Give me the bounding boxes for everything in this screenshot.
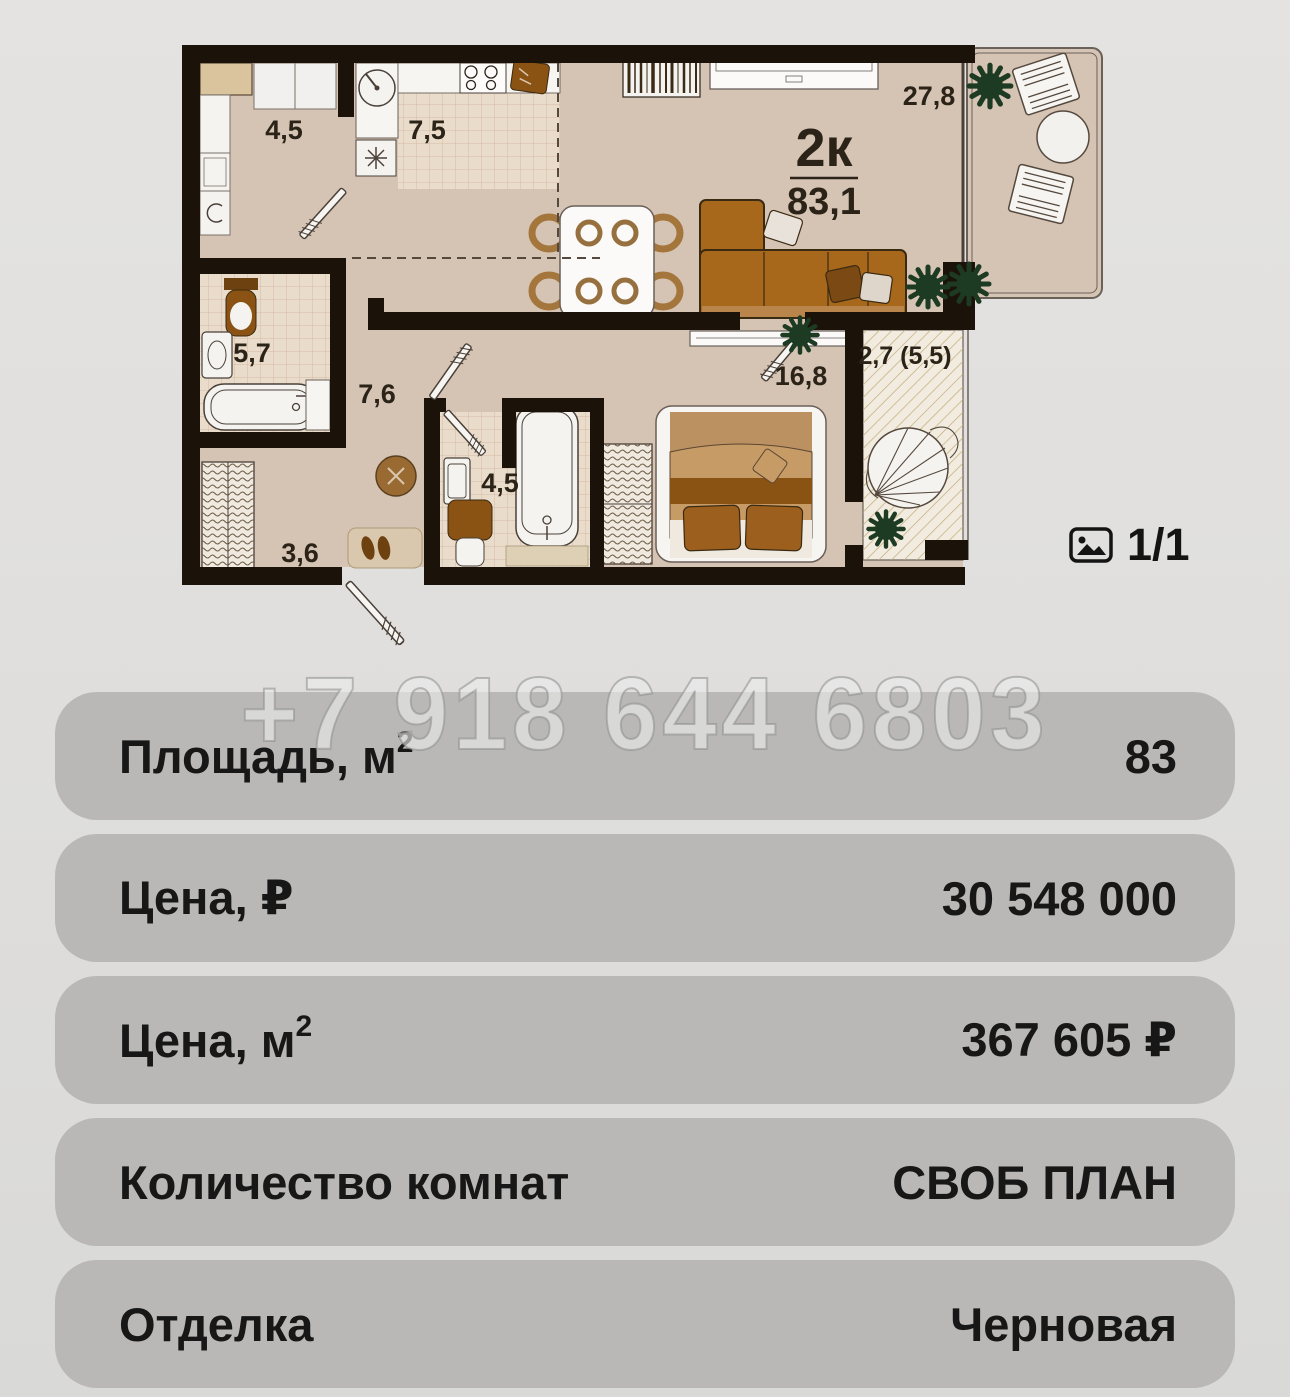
- photo-counter: 1/1: [1068, 519, 1190, 571]
- photo-counter-text: 1/1: [1127, 519, 1190, 571]
- room-area-label-laundry: 4,5: [265, 115, 303, 145]
- room-area-label-balcony: 2,7 (5,5): [858, 342, 951, 370]
- detail-row-area: Площадь, м2 83: [55, 692, 1235, 820]
- room-area-label-bedroom: 16,8: [775, 361, 828, 391]
- detail-row-finishing: Отделка Черновая: [55, 1260, 1235, 1388]
- detail-value: 83: [1125, 729, 1177, 784]
- room-area-label-corridor: 7,6: [358, 379, 396, 409]
- detail-value: Черновая: [950, 1297, 1177, 1352]
- detail-label: Площадь, м2: [119, 729, 413, 784]
- detail-value: 30 548 000: [942, 871, 1177, 926]
- plan-total-area-label: 83,1: [787, 181, 861, 223]
- detail-row-price: Цена, ₽ 30 548 000: [55, 834, 1235, 962]
- detail-value: СВОБ ПЛАН: [892, 1155, 1177, 1210]
- room-area-label-bathroom: 5,7: [233, 338, 271, 368]
- image-icon: [1068, 525, 1114, 565]
- detail-value: 367 605 ₽: [961, 1012, 1177, 1068]
- room-area-label-hallway: 3,6: [281, 538, 319, 568]
- room-area-label-kitchen: 7,5: [408, 115, 446, 145]
- detail-row-price-per-m2: Цена, м2 367 605 ₽: [55, 976, 1235, 1104]
- detail-label: Цена, ₽: [119, 870, 293, 926]
- plan-type-label: 2к: [795, 118, 853, 178]
- detail-row-rooms: Количество комнат СВОБ ПЛАН: [55, 1118, 1235, 1246]
- room-area-label-bathroom2: 4,5: [481, 468, 519, 498]
- detail-label: Отделка: [119, 1297, 313, 1352]
- details-list: Площадь, м2 83 Цена, ₽ 30 548 000 Цена, …: [55, 692, 1235, 1388]
- detail-label: Количество комнат: [119, 1155, 569, 1210]
- detail-label: Цена, м2: [119, 1013, 312, 1068]
- room-area-label-living: 27,8: [903, 81, 956, 111]
- floorplan-image[interactable]: 4,5 7,5 27,8 2к 83,1 5,7 7,6 3,6 4,5 16,…: [0, 0, 1290, 672]
